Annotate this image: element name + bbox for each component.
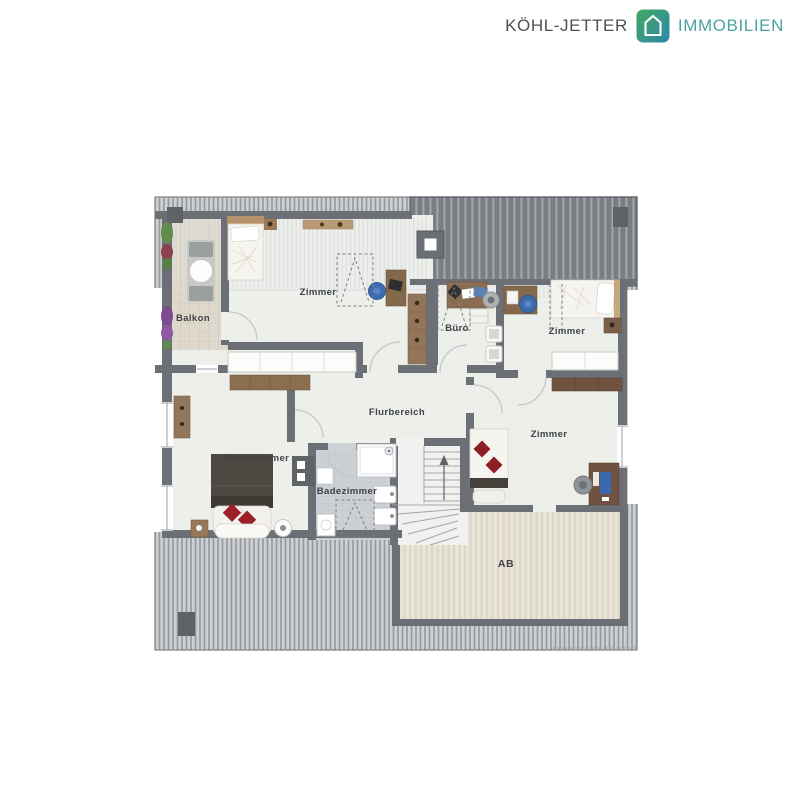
wall-shelf bbox=[303, 220, 353, 229]
room-label-room-top-left: Zimmer bbox=[300, 287, 337, 298]
chimney-icon bbox=[167, 207, 183, 223]
nightstand bbox=[191, 520, 208, 537]
room-label-attic-storage: AB bbox=[498, 558, 514, 570]
washing-machine bbox=[317, 514, 335, 536]
bath-cabinet bbox=[317, 468, 333, 484]
balcony-chair bbox=[189, 242, 213, 257]
window bbox=[196, 365, 218, 373]
room-label-bedroom: Schlafzimmer bbox=[223, 453, 290, 464]
seat bbox=[486, 346, 502, 362]
room-label-bathroom: Badezimmer bbox=[317, 486, 378, 497]
sideboard-white bbox=[228, 352, 356, 372]
sink bbox=[374, 486, 396, 503]
window bbox=[161, 402, 173, 448]
balcony-chair bbox=[189, 286, 213, 301]
balcony-table bbox=[190, 260, 213, 283]
desk bbox=[447, 282, 488, 308]
desk bbox=[504, 286, 537, 314]
bed bbox=[227, 216, 264, 280]
wardrobe bbox=[174, 396, 190, 438]
bed bbox=[551, 280, 620, 318]
flue-shaft-icon bbox=[292, 456, 315, 486]
room-label-room-top-right: Zimmer bbox=[549, 326, 586, 337]
tall-cabinet bbox=[408, 294, 426, 364]
seat bbox=[486, 326, 502, 342]
room-label-office: Büro bbox=[445, 323, 469, 334]
room-label-balcony: Balkon bbox=[176, 313, 210, 324]
room-label-room-bottom-right: Zimmer bbox=[531, 429, 568, 440]
double-bed bbox=[211, 454, 273, 538]
margin-right bbox=[628, 290, 639, 504]
corner-shelf bbox=[264, 219, 277, 230]
dresser-brown bbox=[230, 375, 310, 390]
chimney-icon bbox=[613, 207, 628, 227]
chimney-icon bbox=[178, 612, 195, 636]
sink bbox=[374, 508, 396, 525]
margin-left bbox=[151, 288, 162, 532]
bed bbox=[470, 429, 508, 503]
nightstand bbox=[604, 318, 621, 333]
room-label-hallway: Flurbereich bbox=[369, 407, 425, 418]
sideboard-brown bbox=[552, 378, 622, 391]
sideboard-white bbox=[552, 352, 618, 370]
shower bbox=[357, 444, 396, 477]
chimney-icon bbox=[417, 231, 444, 258]
floor-plan: Balkon Zimmer Büro Zimmer Flurbereich Sc… bbox=[0, 0, 794, 789]
window bbox=[161, 485, 173, 531]
lamp bbox=[275, 520, 292, 537]
window bbox=[617, 425, 628, 468]
plan-disclaimer-note: Exposéplan, nicht maßstäblich bbox=[553, 646, 637, 652]
